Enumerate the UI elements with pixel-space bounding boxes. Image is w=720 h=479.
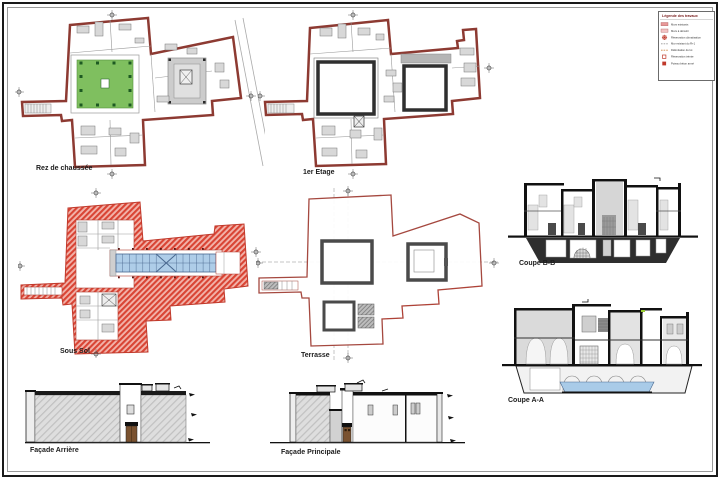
coupe-aa <box>502 294 707 396</box>
patio-court <box>168 58 206 104</box>
courtyard-well-right <box>408 244 448 280</box>
plan-sous-sol-drawing <box>18 186 263 358</box>
pink-fill-swatch <box>661 23 668 26</box>
section-structure <box>524 178 681 237</box>
plan-terrasse-drawing <box>256 186 501 364</box>
ground-line <box>502 364 702 366</box>
courtyard-well-lower <box>324 302 354 330</box>
legend-title: Légende des travaux <box>662 14 698 18</box>
facade-arriere-label: Façade Arrière <box>30 447 79 454</box>
facade-principale <box>270 368 490 448</box>
ground-line <box>508 236 698 238</box>
plan-rdc-label: Rez de chaussée <box>36 165 92 172</box>
left-pillar <box>25 390 36 442</box>
legend-item-label: Murs existants <box>671 22 689 26</box>
facade-principale-label: Façade Principale <box>281 449 341 456</box>
excavation-poche <box>21 202 248 354</box>
arm-detail <box>262 281 298 290</box>
pool <box>560 382 654 392</box>
step-block <box>329 409 343 442</box>
red-filled-square <box>662 62 666 66</box>
drawing-sheet: Rez de chaussée <box>0 0 720 479</box>
section-structure <box>514 299 689 366</box>
plan-soussol-label: Sous Sol <box>60 348 90 355</box>
coupe-bb-label: Coupe B-B <box>519 260 555 267</box>
plan-terrasse <box>256 186 501 364</box>
courtyard-well-left <box>322 241 372 283</box>
legend-item-label: Réservation trémie <box>671 55 694 59</box>
roof-hook <box>582 299 588 302</box>
stairs <box>25 104 51 113</box>
legend-item-label: Murs à démolir <box>671 29 689 33</box>
level-arrows <box>188 393 197 442</box>
facade-arriere <box>25 374 250 446</box>
coupe-bb <box>508 175 698 267</box>
legend-drawing: Légende des travaux Murs existants Murs … <box>659 12 714 80</box>
plan-terrasses-label: Terrasse <box>301 352 330 359</box>
coupe-aa-label: Coupe A-A <box>508 397 544 404</box>
plan-sous-sol <box>18 186 263 358</box>
roof-boxes <box>316 380 388 392</box>
main-block <box>353 392 437 442</box>
tower <box>119 383 142 442</box>
basement <box>516 366 692 394</box>
legend-item-label: Poteau béton armé <box>671 61 694 65</box>
stair-core <box>102 294 116 306</box>
courtyard-garden <box>77 60 133 108</box>
stair-core <box>354 116 364 127</box>
right-wall <box>141 391 186 442</box>
left-wall <box>35 391 121 442</box>
legend-item-label: Mur existant du R+1 <box>671 42 696 46</box>
facade-principale-drawing <box>270 368 490 448</box>
legend: Légende des travaux Murs existants Murs … <box>658 11 715 81</box>
pool-skylight <box>110 250 240 276</box>
coupe-aa-drawing <box>502 294 707 396</box>
plan-rez-de-chaussee <box>15 8 265 180</box>
plan-etage1-label: 1er Etage <box>303 169 335 176</box>
legend-item-label: Réservation climatisation <box>671 35 701 39</box>
roof-access-2 <box>358 317 374 328</box>
plan-rez-de-chaussee-drawing <box>15 8 265 180</box>
facade-arriere-drawing <box>25 374 250 446</box>
plan-1er-etage-drawing <box>258 8 496 180</box>
tower-window <box>127 405 134 414</box>
left-block <box>296 392 330 442</box>
red-outline-square <box>663 55 666 58</box>
roof-access <box>358 304 374 315</box>
legend-item-label: Délimitation du lot <box>671 48 693 52</box>
light-pink-swatch <box>661 29 668 32</box>
red-rosette-icon <box>662 35 667 40</box>
coupe-bb-drawing <box>508 175 698 267</box>
tower <box>340 388 354 442</box>
terrace-strip <box>401 54 451 63</box>
roof-hook <box>654 178 660 181</box>
plan-1er-etage <box>258 8 496 180</box>
stairs <box>268 104 294 113</box>
roof-boxes <box>141 383 181 391</box>
roof-marker <box>641 310 645 312</box>
right-pillar <box>436 392 443 442</box>
courtyard-void-left <box>318 62 374 114</box>
level-arrows <box>447 394 456 443</box>
courtyard-void-right <box>404 66 446 110</box>
